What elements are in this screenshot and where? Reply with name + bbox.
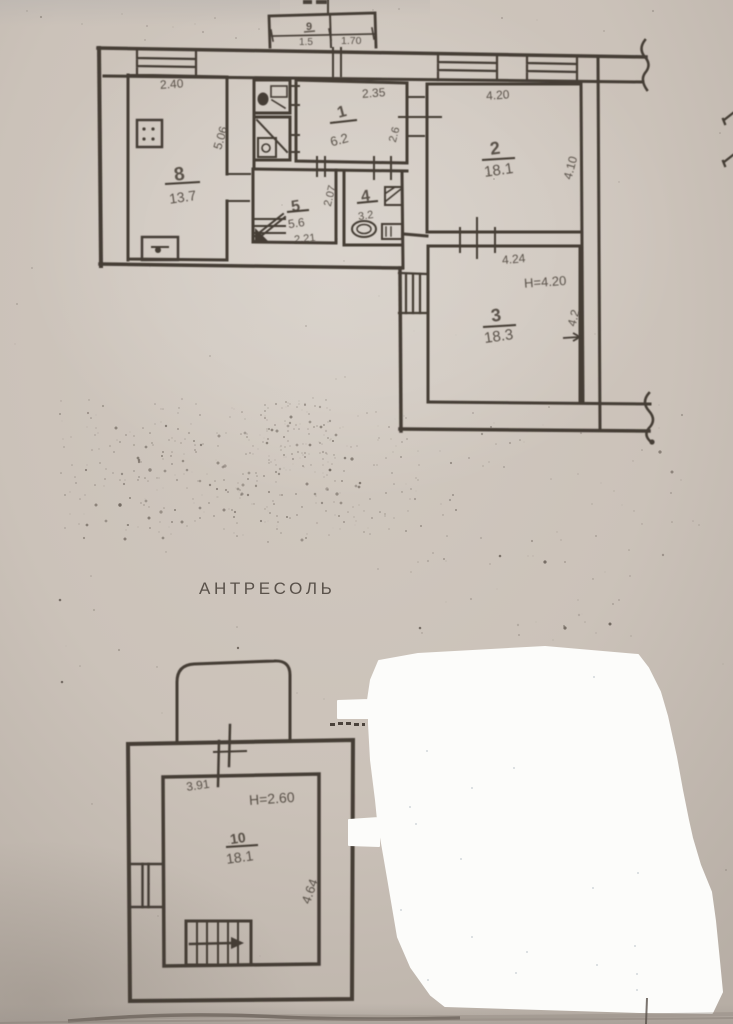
svg-text:2.35: 2.35 — [362, 85, 387, 101]
svg-text:3.2: 3.2 — [357, 209, 374, 223]
svg-text:2.21: 2.21 — [294, 232, 317, 246]
svg-text:АНТРЕСОЛЬ: АНТРЕСОЛЬ — [199, 579, 335, 598]
svg-text:H=2.60: H=2.60 — [249, 789, 296, 808]
svg-text:H=4.20: H=4.20 — [524, 273, 567, 291]
svg-text:5.6: 5.6 — [287, 215, 306, 231]
svg-text:2.40: 2.40 — [160, 76, 185, 92]
svg-text:4.24: 4.24 — [501, 251, 526, 267]
svg-text:10: 10 — [229, 829, 247, 847]
svg-text:1.70: 1.70 — [341, 35, 362, 47]
svg-text:1.5: 1.5 — [299, 37, 313, 48]
svg-text:4.20: 4.20 — [486, 87, 511, 103]
